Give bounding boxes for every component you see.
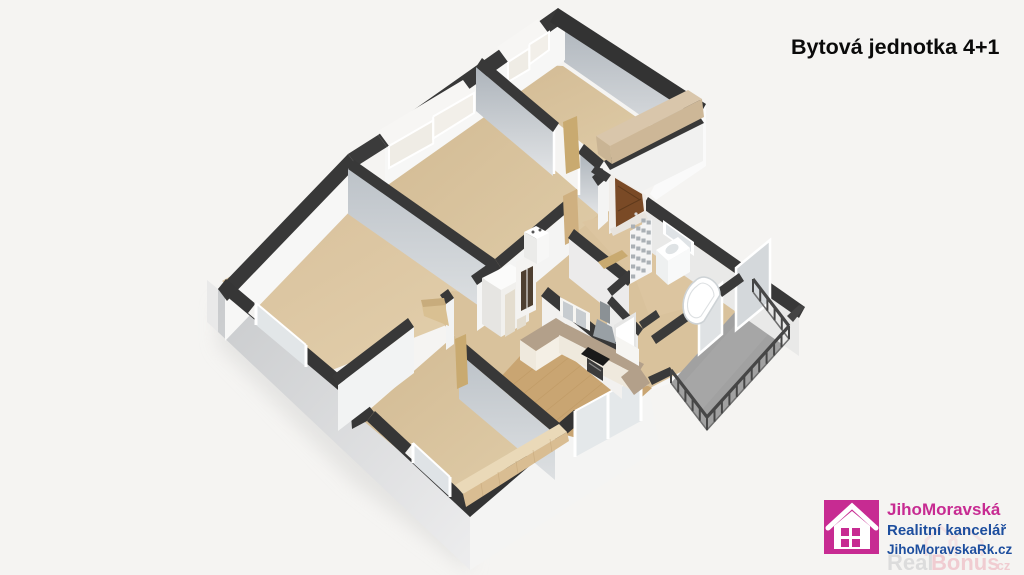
svg-text:Realitní kancelář: Realitní kancelář (887, 522, 1006, 539)
svg-text:JihoMoravskaRk.cz: JihoMoravskaRk.cz (887, 542, 1013, 557)
svg-text:.cz: .cz (993, 558, 1011, 573)
svg-text:JihoMoravská: JihoMoravská (887, 500, 1001, 519)
svg-text:Bytová jednotka 4+1: Bytová jednotka 4+1 (791, 35, 1000, 59)
